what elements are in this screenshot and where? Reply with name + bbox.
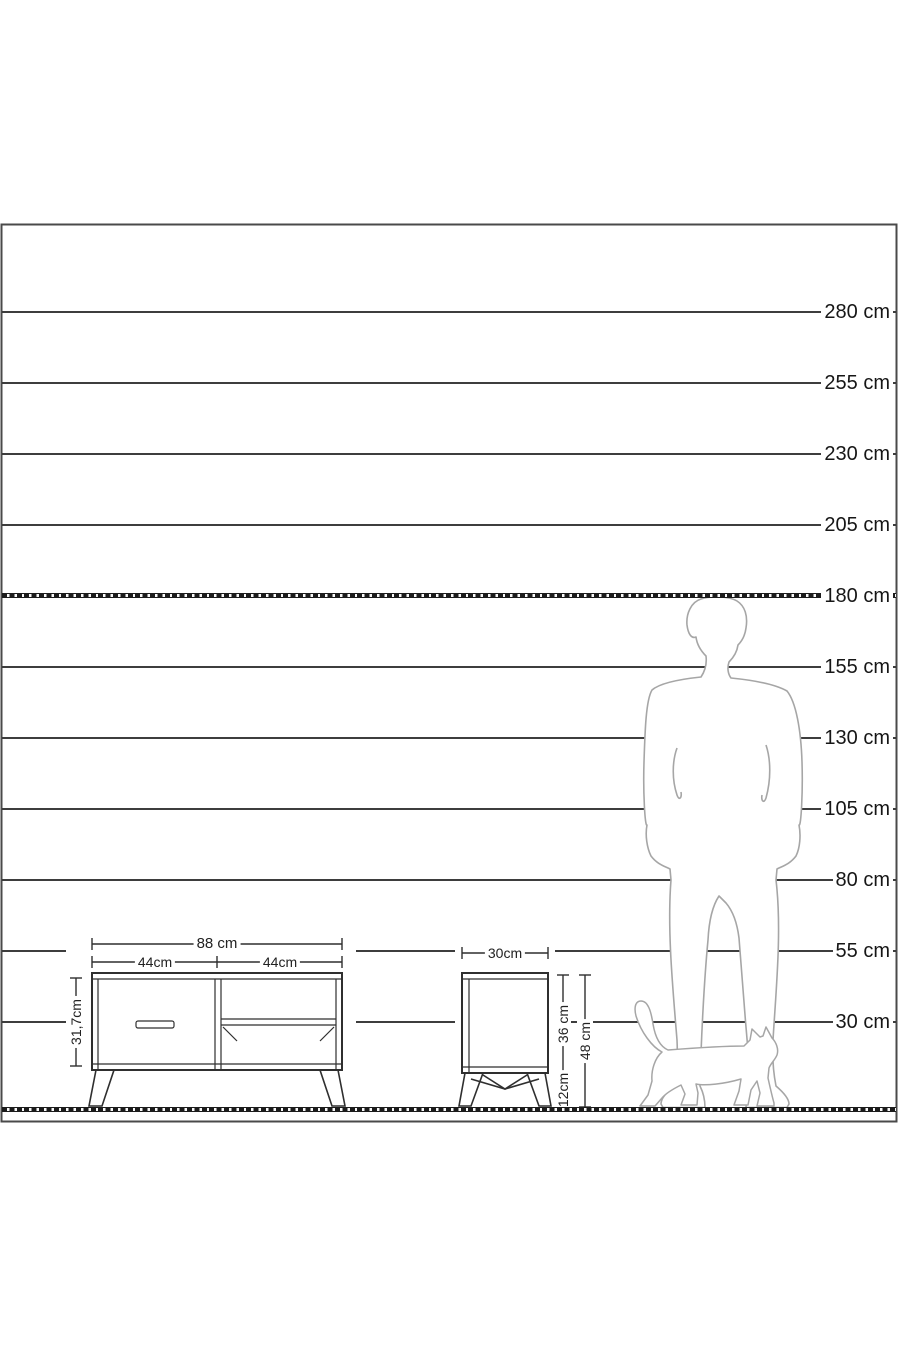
ruler-label-55cm: 55 cm [833,938,893,964]
scene-svg [0,0,900,1350]
tv-stand-height-label: 31,7cm [68,996,84,1048]
ruler-label-155cm: 155 cm [821,654,893,680]
ruler-label-205cm: 205 cm [821,512,893,538]
nightstand-body-height-label: 36 cm [555,1002,571,1046]
scale-diagram: 280 cm 255 cm 230 cm 205 cm 180 cm 155 c… [0,0,900,1350]
nightstand-width-label: 30cm [485,945,525,961]
nightstand-total-height-label: 48 cm [577,1019,593,1063]
ruler-label-80cm: 80 cm [833,867,893,893]
tv-stand-half-width-left-label: 44cm [135,954,175,970]
ruler-label-255cm: 255 cm [821,370,893,396]
ruler-label-230cm: 230 cm [821,441,893,467]
man-silhouette [644,597,803,1108]
ruler-label-280cm: 280 cm [821,299,893,325]
hatch-line-ground [2,1107,896,1112]
hatch-line-180cm [2,593,896,598]
tv-stand-width-label: 88 cm [194,936,241,952]
nightstand-leg-height-label: 12cm [555,1070,571,1110]
ruler-label-180cm: 180 cm [821,583,893,609]
tv-stand-half-width-right-label: 44cm [260,954,300,970]
man-outline [644,597,803,1108]
ruler-label-105cm: 105 cm [821,796,893,822]
ruler-label-130cm: 130 cm [821,725,893,751]
nightstand-mask [455,941,555,1107]
ruler-label-30cm: 30 cm [833,1009,893,1035]
tv-stand-mask [66,933,356,1107]
